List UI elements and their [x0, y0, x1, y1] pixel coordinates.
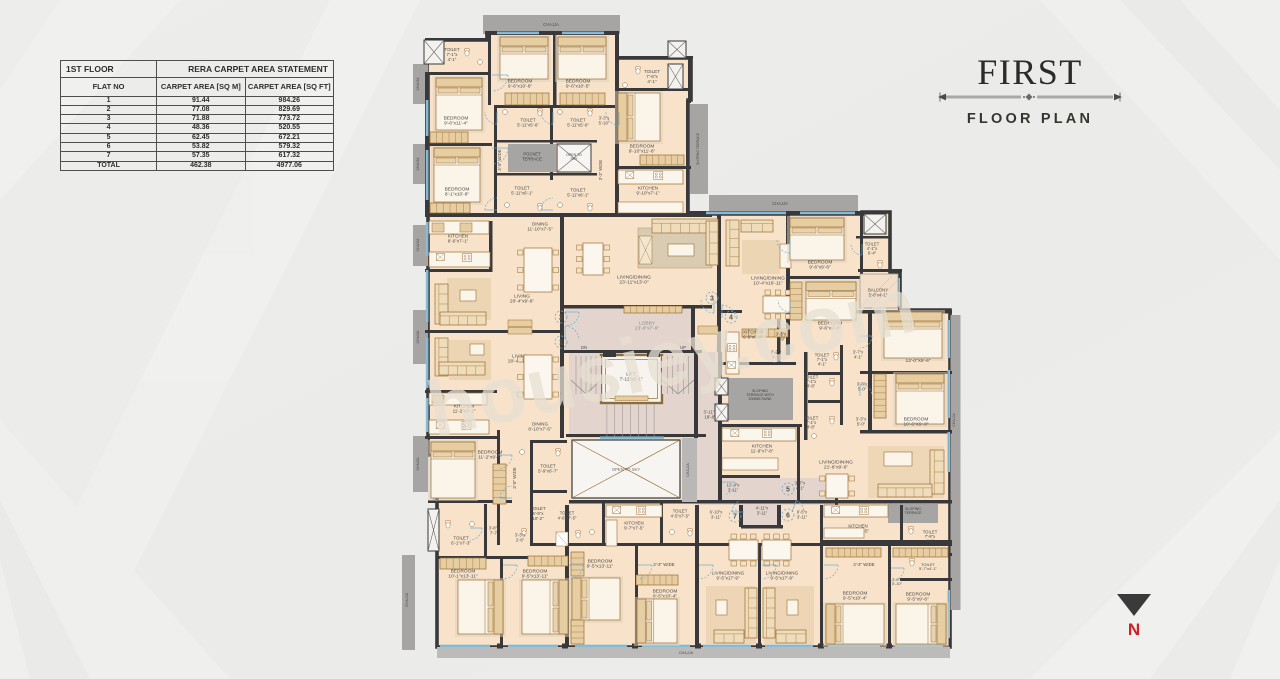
svg-text:9'-6"x9'-6": 9'-6"x9'-6" [809, 265, 831, 271]
svg-text:5'-11"x6'-1": 5'-11"x6'-1" [511, 191, 533, 196]
svg-text:3'-11": 3'-11" [728, 487, 739, 492]
svg-text:CHAJJA: CHAJJA [416, 330, 420, 344]
svg-text:BEDROOM: BEDROOM [906, 591, 931, 597]
svg-text:6'-4": 6'-4" [868, 251, 877, 256]
svg-text:0'-10": 0'-10" [892, 581, 903, 586]
svg-text:9'-10"x7'-1": 9'-10"x7'-1" [636, 191, 660, 196]
svg-text:SKY: SKY [570, 157, 578, 161]
svg-text:BEDROOM: BEDROOM [630, 143, 655, 149]
svg-text:200MM SUNK: 200MM SUNK [749, 397, 773, 401]
svg-text:23'-11"x13'-0": 23'-11"x13'-0" [619, 280, 648, 286]
svg-text:5: 5 [786, 486, 790, 493]
svg-text:9'-7"x7'-5": 9'-7"x7'-5" [624, 526, 644, 531]
svg-text:18'-8": 18'-8" [704, 415, 716, 420]
svg-text:CHAJJA: CHAJJA [686, 463, 690, 477]
svg-text:BEDROOM: BEDROOM [808, 259, 833, 265]
svg-text:4'-8": 4'-8" [807, 425, 816, 430]
svg-text:10'-4"x16'-11": 10'-4"x16'-11" [753, 281, 782, 287]
svg-text:CHAJJA: CHAJJA [416, 238, 420, 252]
svg-text:CHAJJA: CHAJJA [952, 413, 956, 427]
svg-text:4'-1": 4'-1" [647, 79, 657, 84]
svg-text:CHAJJA: CHAJJA [772, 201, 788, 206]
svg-text:9'-5"x17'-9": 9'-5"x17'-9" [716, 576, 740, 581]
svg-text:21'-6"x9'-6": 21'-6"x9'-6" [824, 465, 848, 471]
svg-text:6: 6 [786, 512, 790, 519]
svg-text:3'-3" WIDE: 3'-3" WIDE [598, 160, 603, 181]
svg-text:CHAJJA: CHAJJA [416, 157, 420, 171]
svg-text:5'-0": 5'-0" [857, 421, 866, 426]
svg-text:BEDROOM: BEDROOM [904, 416, 929, 422]
svg-text:2: 2 [559, 314, 563, 321]
svg-text:4'-1": 4'-1" [796, 485, 805, 490]
svg-text:TERRACE: TERRACE [904, 511, 922, 515]
svg-text:3'-11": 3'-11" [797, 514, 808, 519]
svg-text:3'-5" WIDE: 3'-5" WIDE [497, 149, 502, 170]
svg-text:3'-5" WIDE: 3'-5" WIDE [512, 467, 517, 488]
svg-text:9'-5"x10'-4": 9'-5"x10'-4" [843, 596, 867, 602]
svg-text:LIVING: LIVING [514, 293, 530, 299]
svg-text:10'-6"X9'-8": 10'-6"X9'-8" [904, 422, 929, 428]
svg-text:5'-0": 5'-0" [858, 386, 867, 391]
svg-text:11'-2"x9'-6": 11'-2"x9'-6" [478, 455, 502, 461]
svg-text:4'-1": 4'-1" [926, 539, 935, 544]
svg-text:6'-1"x7'-3": 6'-1"x7'-3" [451, 541, 471, 546]
svg-text:BEDROOM: BEDROOM [444, 115, 469, 121]
svg-text:LIVING/DINING: LIVING/DINING [751, 275, 785, 281]
svg-text:4'-1": 4'-1" [448, 57, 457, 62]
svg-text:9'-10"x11'-6": 9'-10"x11'-6" [629, 149, 656, 155]
svg-text:CHAJJA: CHAJJA [416, 457, 420, 471]
svg-text:7: 7 [733, 513, 737, 520]
svg-text:BEDROOM: BEDROOM [445, 186, 470, 192]
svg-text:3'-11": 3'-11" [711, 514, 722, 519]
svg-text:4'-8": 4'-8" [807, 384, 816, 389]
svg-text:20'-4"x9'-6": 20'-4"x9'-6" [510, 299, 534, 305]
svg-text:9'-5"x13'-11": 9'-5"x13'-11" [587, 564, 614, 570]
svg-text:4'-6"x7'-5": 4'-6"x7'-5" [558, 515, 577, 520]
svg-text:4'-5"x7'-5": 4'-5"x7'-5" [671, 513, 690, 518]
svg-text:5'-11"x5'-6": 5'-11"x5'-6" [517, 123, 539, 128]
svg-text:BEDROOM: BEDROOM [523, 568, 548, 574]
svg-text:8'-1"x10'-8": 8'-1"x10'-8" [445, 192, 469, 198]
svg-text:CHAJJA: CHAJJA [405, 592, 409, 607]
svg-text:3'-3" WIDE: 3'-3" WIDE [653, 562, 674, 567]
svg-text:LIVING/DINING: LIVING/DINING [617, 274, 651, 280]
svg-text:3'-11": 3'-11" [757, 510, 768, 515]
svg-text:13'-0"X9'-6": 13'-0"X9'-6" [906, 358, 931, 364]
svg-text:11'-10"x7'-5": 11'-10"x7'-5" [527, 227, 553, 232]
svg-text:5'-10": 5'-10" [599, 120, 610, 125]
svg-text:3'-3" WIDE: 3'-3" WIDE [853, 562, 874, 567]
svg-text:9'-6"x10'-5": 9'-6"x10'-5" [566, 84, 590, 90]
svg-text:9'-5"x9'-6": 9'-5"x9'-6" [907, 597, 929, 603]
svg-text:5'-11"x6'-1": 5'-11"x6'-1" [567, 193, 589, 198]
svg-text:OPEN TO SKY: OPEN TO SKY [612, 467, 640, 472]
svg-text:BEDROOM: BEDROOM [508, 78, 533, 84]
svg-text:8'-6"x7'-1": 8'-6"x7'-1" [448, 239, 469, 244]
svg-text:9'-6"x10'-6": 9'-6"x10'-6" [508, 84, 532, 90]
svg-text:SLOPING TERRACE: SLOPING TERRACE [696, 132, 700, 165]
svg-text:5'-9"x6'-7": 5'-9"x6'-7" [538, 469, 558, 474]
svg-text:BEDROOM: BEDROOM [478, 449, 503, 455]
svg-text:2'-6": 2'-6" [516, 537, 525, 542]
svg-text:BEDROOM: BEDROOM [653, 588, 678, 594]
svg-text:CHAJJA: CHAJJA [679, 651, 694, 655]
svg-text:BEDROOM: BEDROOM [588, 558, 613, 564]
svg-text:TERRACE: TERRACE [522, 156, 542, 161]
svg-text:9'-5"x17'-9": 9'-5"x17'-9" [770, 576, 794, 581]
svg-text:CHAJJA: CHAJJA [416, 77, 420, 91]
svg-text:10'-2": 10'-2" [532, 516, 544, 521]
svg-text:LIVING/DINING: LIVING/DINING [819, 459, 853, 465]
svg-text:7'-7": 7'-7" [490, 530, 499, 535]
svg-text:CHAJJA: CHAJJA [543, 22, 559, 27]
svg-text:11'-8"x7'-8": 11'-8"x7'-8" [751, 449, 774, 454]
svg-text:5'-11"x5'-6": 5'-11"x5'-6" [567, 123, 589, 128]
svg-text:BEDROOM: BEDROOM [566, 78, 591, 84]
svg-text:9'-6"x11'-4": 9'-6"x11'-4" [444, 121, 468, 127]
svg-text:BEDROOM: BEDROOM [843, 590, 868, 596]
svg-text:5'-7"x4'-1": 5'-7"x4'-1" [919, 566, 938, 571]
